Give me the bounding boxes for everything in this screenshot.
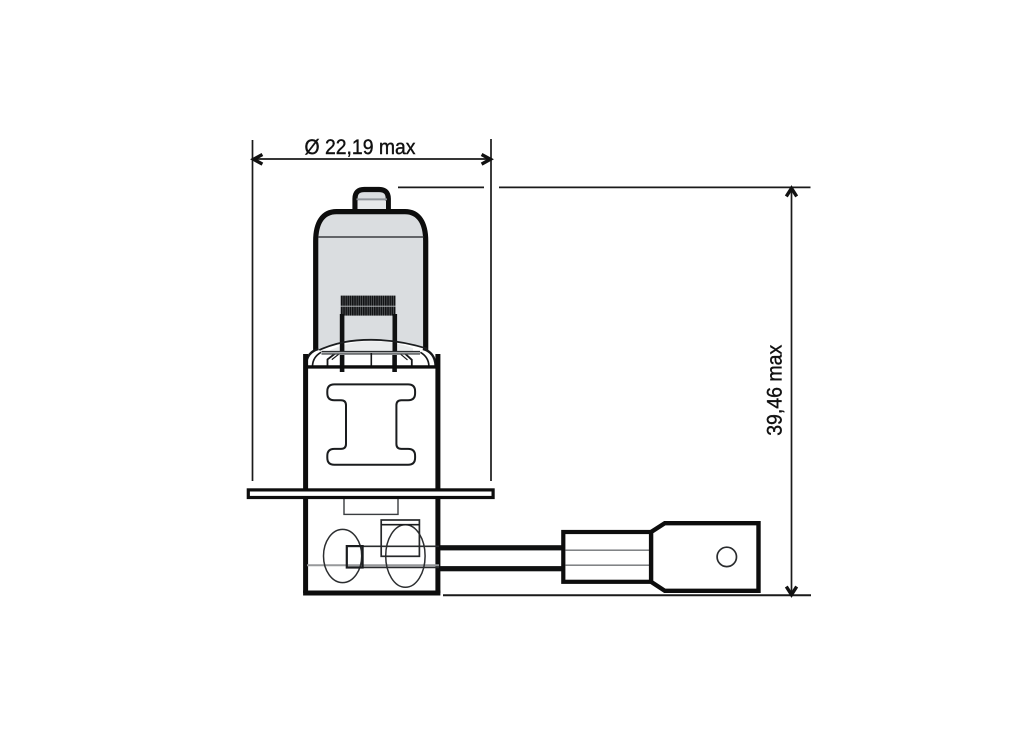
svg-text:Ø 22,19 max: Ø 22,19 max <box>305 136 416 159</box>
svg-text:39,46 max: 39,46 max <box>764 344 787 435</box>
